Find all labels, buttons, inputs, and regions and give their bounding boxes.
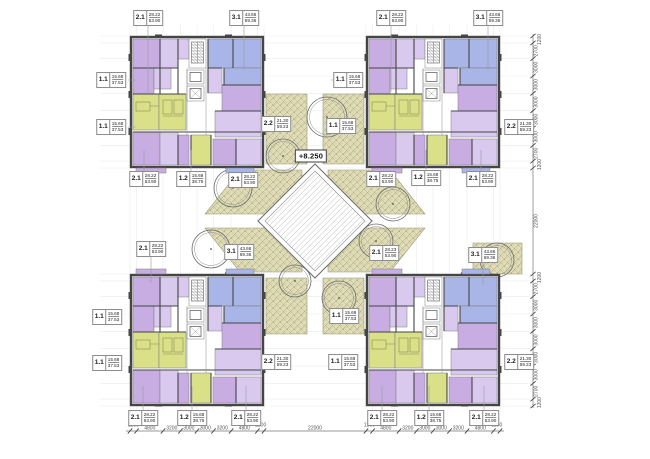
dimension-label: 3000 xyxy=(534,79,540,90)
building-bottom-right xyxy=(365,273,502,407)
apartment-area-total: 53.90 xyxy=(145,180,157,186)
apartment-areas: 15.6837.53 xyxy=(347,73,362,87)
apartment-areas: 15.6838.75 xyxy=(428,411,443,425)
apartment-label: 3.143.6669.36 xyxy=(468,247,498,263)
apartment-areas: 43.6669.36 xyxy=(482,248,497,262)
apartment-label: 2.221.3059.23 xyxy=(261,354,291,370)
apartment-area-living: 15.68 xyxy=(342,120,354,127)
apartment-areas: 28.2253.90 xyxy=(381,411,396,425)
apartment-type: 2.1 xyxy=(367,172,380,186)
dimension-label: 2700 xyxy=(534,45,540,56)
elevation-label: +8.250 xyxy=(295,150,327,163)
apartment-area-living: 15.68 xyxy=(112,121,124,128)
apartment-area-total: 59.23 xyxy=(520,128,532,134)
apartment-area-living: 15.68 xyxy=(108,357,120,364)
dimension-label: 3000 xyxy=(200,426,211,432)
apartment-label: 2.128.2253.90 xyxy=(133,10,163,26)
apartment-areas: 28.2253.90 xyxy=(483,411,498,425)
apartment-area-total: 53.90 xyxy=(485,419,497,425)
apartment-type: 1.1 xyxy=(330,309,343,323)
apartment-area-total: 53.90 xyxy=(144,419,156,425)
dimension-label: 4800 xyxy=(144,426,155,432)
apartment-type: 2.1 xyxy=(134,11,147,25)
apartment-area-living: 28.22 xyxy=(149,12,161,19)
dimension-label: 3000 xyxy=(534,62,540,73)
dimension-label: 22000 xyxy=(308,426,322,432)
apartment-label: 3.143.6669.36 xyxy=(229,10,259,26)
apartment-areas: 15.6837.53 xyxy=(110,73,125,87)
dimension-label: 2700 xyxy=(534,148,540,159)
apartment-areas: 15.6837.53 xyxy=(106,310,121,324)
apartment-area-total: 37.53 xyxy=(108,318,120,324)
apartment-label: 1.115.6837.53 xyxy=(326,118,356,134)
apartment-areas: 28.2253.90 xyxy=(150,242,165,256)
apartment-area-total: 59.23 xyxy=(277,125,289,131)
apartment-label: 2.221.3059.23 xyxy=(504,354,534,370)
landscape-patch xyxy=(323,278,364,334)
apartment-area-total: 53.90 xyxy=(392,19,404,25)
apartment-areas: 28.2253.90 xyxy=(480,172,495,186)
apartment-type: 1.2 xyxy=(178,411,191,425)
dimension-label: 3000 xyxy=(183,426,194,432)
apartment-type: 2.2 xyxy=(505,355,518,369)
apartment-label: 2.128.2253.90 xyxy=(376,10,406,26)
apartment-area-total: 53.90 xyxy=(383,419,395,425)
dimension-label: 3200 xyxy=(217,426,228,432)
apartment-area-total: 69.36 xyxy=(245,19,257,25)
apartment-area-living: 28.22 xyxy=(392,12,404,19)
apartment-area-total: 53.90 xyxy=(385,254,397,260)
apartment-areas: 15.6837.53 xyxy=(340,119,355,133)
apartment-area-living: 28.22 xyxy=(145,173,157,180)
apartment-type: 2.1 xyxy=(377,11,390,25)
apartment-label: 1.115.6837.53 xyxy=(96,119,126,135)
apartment-label: 2.128.2253.90 xyxy=(129,171,159,187)
apartment-area-total: 53.90 xyxy=(482,180,494,186)
apartment-areas: 21.3059.23 xyxy=(275,117,290,131)
apartment-type: 2.2 xyxy=(262,355,275,369)
apartment-area-living: 28.22 xyxy=(152,243,164,250)
apartment-area-living: 43.66 xyxy=(489,12,501,19)
building-top-left xyxy=(129,35,266,169)
dimension-label: 3000 xyxy=(534,131,540,142)
apartment-area-living: 28.22 xyxy=(485,412,497,419)
apartment-areas: 28.2253.90 xyxy=(242,173,257,187)
dimension-label: 1200 xyxy=(537,34,543,45)
apartment-areas: 21.3059.23 xyxy=(275,355,290,369)
dimension-label: 3000 xyxy=(419,426,430,432)
apartment-area-living: 21.30 xyxy=(277,356,289,363)
apartment-area-total: 37.53 xyxy=(112,81,124,87)
apartment-area-living: 21.30 xyxy=(520,121,532,128)
apartment-area-total: 53.90 xyxy=(382,180,394,186)
apartment-area-total: 38.75 xyxy=(430,419,442,425)
apartment-areas: 43.6669.36 xyxy=(243,11,258,25)
apartment-label: 1.215.6838.75 xyxy=(177,410,207,426)
apartment-label: 2.221.3059.23 xyxy=(261,116,291,132)
building-top-right xyxy=(365,35,502,169)
apartment-area-total: 37.53 xyxy=(112,128,124,134)
apartment-area-total: 59.23 xyxy=(277,363,289,369)
apartment-area-total: 59.23 xyxy=(520,363,532,369)
apartment-area-total: 37.53 xyxy=(342,127,354,133)
apartment-type: 2.1 xyxy=(470,411,483,425)
dimension-label: 3000 xyxy=(534,369,540,380)
apartment-type: 1.1 xyxy=(93,356,106,370)
apartment-area-total: 69.36 xyxy=(240,253,252,259)
apartment-label: 1.115.6837.53 xyxy=(329,308,359,324)
apartment-area-living: 21.30 xyxy=(277,118,289,125)
dimension-label: 3000 xyxy=(534,300,540,311)
apartment-areas: 28.2253.90 xyxy=(142,411,157,425)
apartment-label: 1.215.6838.75 xyxy=(414,410,444,426)
apartment-area-living: 28.22 xyxy=(247,412,259,419)
dimension-label: 4800 xyxy=(380,426,391,432)
apartment-label: 2.128.2253.90 xyxy=(136,241,166,257)
apartment-areas: 43.6669.36 xyxy=(487,11,502,25)
apartment-label: 1.115.6837.53 xyxy=(328,354,358,370)
apartment-area-living: 15.68 xyxy=(349,74,361,81)
apartment-area-living: 28.22 xyxy=(382,173,394,180)
apartment-areas: 15.6837.53 xyxy=(106,356,121,370)
apartment-type: 2.1 xyxy=(232,411,245,425)
apartment-areas: 15.6838.75 xyxy=(191,411,206,425)
apartment-areas: 28.2253.90 xyxy=(245,411,260,425)
apartment-areas: 28.2253.90 xyxy=(143,172,158,186)
apartment-area-living: 28.22 xyxy=(244,174,256,181)
apartment-areas: 15.6837.53 xyxy=(110,120,125,134)
apartment-label: 2.128.2353.90 xyxy=(369,245,399,261)
apartment-type: 3.1 xyxy=(469,248,482,262)
apartment-area-living: 21.30 xyxy=(520,356,532,363)
apartment-areas: 28.2253.90 xyxy=(380,172,395,186)
apartment-type: 3.1 xyxy=(474,11,487,25)
site-plan-svg: 1200480032003000300032004800120022000120… xyxy=(0,0,650,459)
apartment-label: 1.115.6837.53 xyxy=(96,72,126,88)
apartment-area-total: 37.53 xyxy=(344,363,356,369)
apartment-area-living: 15.68 xyxy=(193,412,205,419)
apartment-area-total: 53.90 xyxy=(152,250,164,256)
apartment-area-living: 43.66 xyxy=(245,12,257,19)
apartment-type: 1.2 xyxy=(177,172,190,186)
apartment-area-total: 69.36 xyxy=(489,19,501,25)
dimension-label: 3000 xyxy=(436,426,447,432)
apartment-area-living: 15.68 xyxy=(192,173,204,180)
apartment-area-living: 43.66 xyxy=(240,246,252,253)
apartment-areas: 21.3059.23 xyxy=(518,355,533,369)
dimension-label: 3000 xyxy=(534,114,540,125)
apartment-type: 1.1 xyxy=(327,119,340,133)
apartment-area-total: 37.53 xyxy=(345,317,357,323)
apartment-label: 1.215.6838.75 xyxy=(411,170,441,186)
floor-plan-canvas: 1200480032003000300032004800120022000120… xyxy=(0,0,650,459)
apartment-label: 2.128.2253.90 xyxy=(367,410,397,426)
apartment-area-living: 28.22 xyxy=(383,412,395,419)
apartment-type: 2.2 xyxy=(262,117,275,131)
dimension-label: 1200 xyxy=(537,397,543,408)
apartment-type: 1.1 xyxy=(329,355,342,369)
apartment-type: 2.1 xyxy=(130,172,143,186)
apartment-type: 2.1 xyxy=(129,411,142,425)
apartment-area-total: 53.90 xyxy=(247,419,259,425)
apartment-type: 2.1 xyxy=(229,173,242,187)
apartment-type: 3.1 xyxy=(230,11,243,25)
apartment-label: 2.128.2253.90 xyxy=(366,171,396,187)
apartment-area-total: 53.90 xyxy=(149,19,161,25)
apartment-areas: 15.6838.75 xyxy=(425,171,440,185)
apartment-label: 2.128.2253.90 xyxy=(469,410,499,426)
apartment-area-total: 38.75 xyxy=(427,179,439,185)
apartment-areas: 28.2253.90 xyxy=(390,11,405,25)
apartment-label: 1.215.6838.75 xyxy=(176,171,206,187)
building-bottom-left xyxy=(129,273,266,407)
apartment-area-living: 15.68 xyxy=(112,74,124,81)
apartment-area-total: 37.53 xyxy=(349,81,361,87)
apartment-label: 1.115.6837.53 xyxy=(92,355,122,371)
apartment-label: 3.143.6669.36 xyxy=(224,244,254,260)
dimension-label: 1200 xyxy=(537,272,543,283)
apartment-label: 2.128.2253.90 xyxy=(128,410,158,426)
apartment-area-total: 37.53 xyxy=(108,364,120,370)
apartment-label: 1.115.6837.53 xyxy=(92,309,122,325)
dimension-label: 3200 xyxy=(166,426,177,432)
apartment-label: 2.128.2253.90 xyxy=(231,410,261,426)
apartment-area-living: 28.22 xyxy=(482,173,494,180)
apartment-areas: 28.2353.90 xyxy=(383,246,398,260)
apartment-areas: 15.6837.53 xyxy=(342,355,357,369)
apartment-type: 2.1 xyxy=(137,242,150,256)
apartment-area-living: 15.68 xyxy=(108,311,120,318)
apartment-type: 1.2 xyxy=(412,171,425,185)
apartment-area-total: 69.36 xyxy=(484,256,496,262)
apartment-area-living: 28.22 xyxy=(144,412,156,419)
apartment-area-living: 15.68 xyxy=(427,172,439,179)
dimension-label: 3200 xyxy=(453,426,464,432)
dimension-label: 4800 xyxy=(239,426,250,432)
apartment-areas: 15.6838.75 xyxy=(190,172,205,186)
apartment-areas: 15.6837.53 xyxy=(343,309,358,323)
apartment-area-living: 15.68 xyxy=(345,310,357,317)
apartment-label: 2.128.2253.90 xyxy=(228,172,258,188)
dimension-label: 22000 xyxy=(534,214,540,228)
apartment-area-living: 15.68 xyxy=(430,412,442,419)
dimension-label: 2700 xyxy=(534,283,540,294)
apartment-type: 2.1 xyxy=(370,246,383,260)
dimension-label: 1200 xyxy=(537,159,543,170)
apartment-areas: 28.2253.90 xyxy=(147,11,162,25)
dimension-chain-right: 1200270030003000300030003000270012002200… xyxy=(530,34,543,408)
apartment-area-living: 28.23 xyxy=(385,247,397,254)
dimension-label: 2700 xyxy=(534,386,540,397)
apartment-label: 2.221.3059.23 xyxy=(504,119,534,135)
apartment-area-total: 38.75 xyxy=(193,419,205,425)
apartment-label: 3.143.6669.36 xyxy=(473,10,503,26)
apartment-type: 2.2 xyxy=(505,120,518,134)
apartment-type: 2.1 xyxy=(368,411,381,425)
apartment-area-total: 38.75 xyxy=(192,180,204,186)
apartment-type: 1.1 xyxy=(97,120,110,134)
apartment-areas: 21.3059.23 xyxy=(518,120,533,134)
apartment-areas: 43.6669.36 xyxy=(238,245,253,259)
apartment-type: 2.1 xyxy=(467,172,480,186)
dimension-label: 3000 xyxy=(534,317,540,328)
dimension-label: 3000 xyxy=(534,334,540,345)
landscape-patch xyxy=(266,278,307,334)
apartment-type: 1.2 xyxy=(415,411,428,425)
apartment-type: 1.1 xyxy=(97,73,110,87)
dimension-label: 4800 xyxy=(475,426,486,432)
dimension-label: 3200 xyxy=(402,426,413,432)
apartment-area-living: 43.66 xyxy=(484,249,496,256)
apartment-area-total: 53.90 xyxy=(244,181,256,187)
apartment-label: 1.115.6837.53 xyxy=(333,72,363,88)
dimension-label: 3000 xyxy=(534,352,540,363)
apartment-area-living: 15.68 xyxy=(344,356,356,363)
apartment-label: 2.128.2253.90 xyxy=(466,171,496,187)
apartment-type: 1.1 xyxy=(93,310,106,324)
apartment-type: 3.1 xyxy=(225,245,238,259)
dimension-label: 3000 xyxy=(534,96,540,107)
apartment-type: 1.1 xyxy=(334,73,347,87)
